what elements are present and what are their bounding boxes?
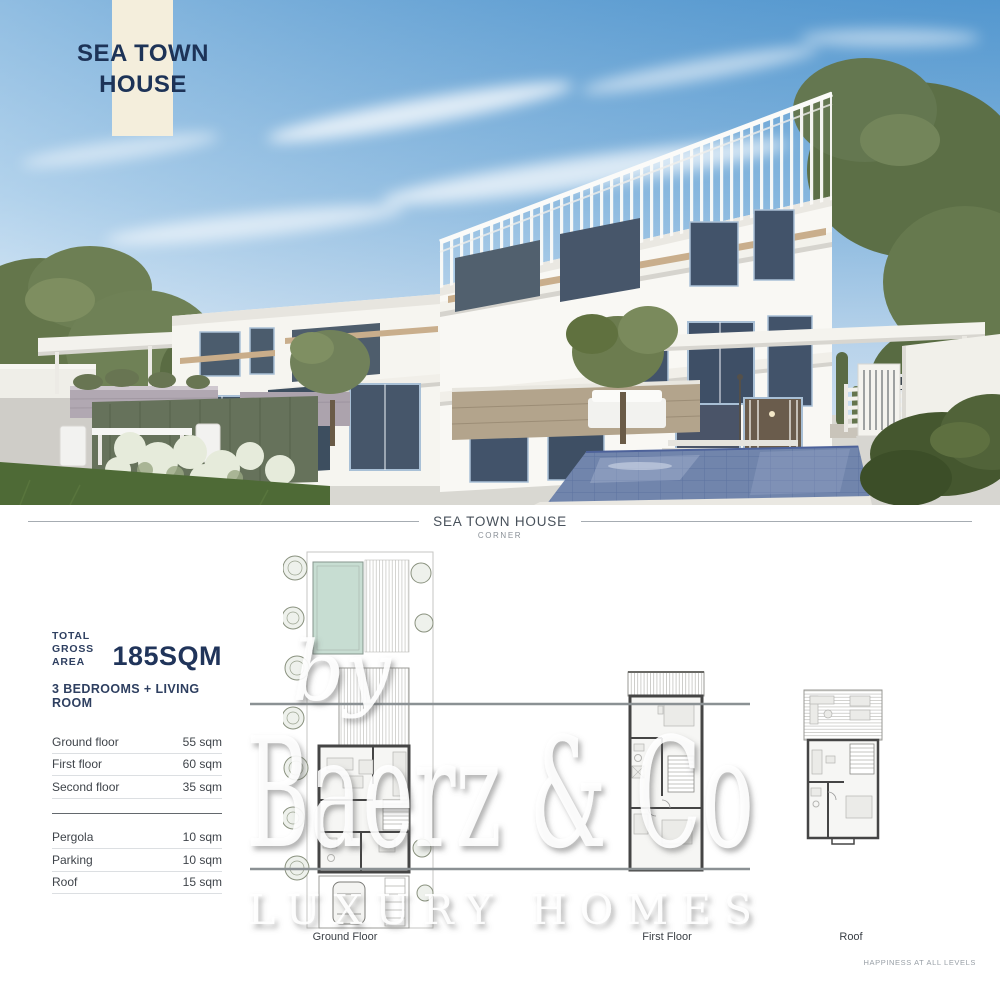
table-row: Pergola 10 sqm [52,827,222,850]
ground-floor-label: Ground Floor [268,931,422,943]
row-label: Pergola [52,830,93,844]
table-row: Second floor 35 sqm [52,776,222,799]
first-floor-plan [618,668,714,880]
row-label: First floor [52,757,102,771]
row-value: 60 sqm [183,757,222,771]
first-floor-label: First Floor [619,931,715,943]
section-header: SEA TOWN HOUSE [28,514,972,529]
section-title: SEA TOWN HOUSE [433,514,567,529]
hero-title-line2: HOUSE [99,71,187,98]
total-area-label: TOTAL GROSS AREA [52,630,102,669]
row-label: Ground floor [52,735,119,749]
row-label: Second floor [52,780,119,794]
row-value: 10 sqm [183,853,222,867]
hero-title-line1: SEA TOWN [77,40,209,67]
total-area-row: TOTAL GROSS AREA 185SQM [52,630,222,669]
row-label: Roof [52,875,77,889]
table-row: First floor 60 sqm [52,754,222,777]
bedrooms-line: 3 BEDROOMS + LIVING ROOM [52,682,222,710]
divider-line-right [581,521,972,522]
hero-title: SEA TOWN HOUSE [40,38,246,100]
hero-section: SEA TOWN HOUSE [0,0,1000,505]
row-label: Parking [52,853,93,867]
roof-plan [798,684,888,848]
row-value: 35 sqm [183,780,222,794]
ground-floor-plan [283,548,437,934]
table-row: Roof 15 sqm [52,872,222,895]
table-row: Ground floor 55 sqm [52,731,222,754]
footer-tagline: HAPPINESS AT ALL LEVELS [864,958,976,967]
table-row: Parking 10 sqm [52,849,222,872]
divider-line-left [28,521,419,522]
row-value: 55 sqm [183,735,222,749]
table-divider [52,813,222,814]
row-value: 15 sqm [183,875,222,889]
brochure-page: SEA TOWN HOUSE SEA TOWN HOUSE CORNER TOT… [0,0,1000,1000]
total-area-value: 185SQM [112,643,222,669]
area-table: Ground floor 55 sqm First floor 60 sqm S… [52,731,222,894]
info-panel: TOTAL GROSS AREA 185SQM 3 BEDROOMS + LIV… [52,630,222,894]
section-subtitle: CORNER [0,531,1000,540]
roof-label: Roof [806,931,896,943]
row-value: 10 sqm [183,830,222,844]
